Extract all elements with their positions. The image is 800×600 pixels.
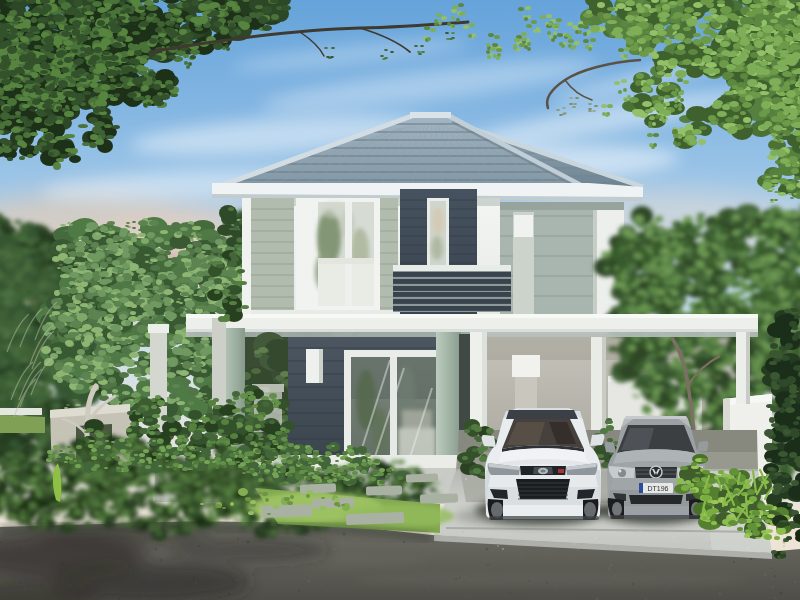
svg-text:DT196: DT196 bbox=[647, 485, 668, 492]
